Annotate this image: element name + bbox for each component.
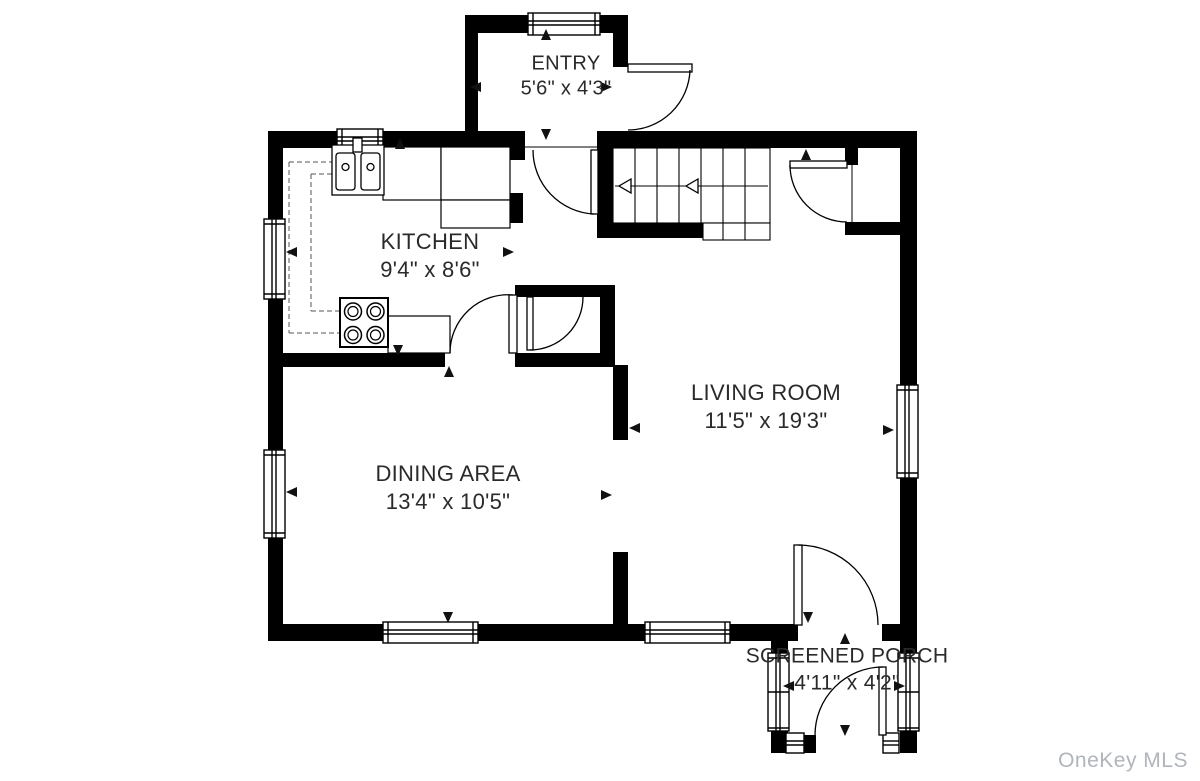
dim-arrow-right — [601, 490, 612, 500]
dim-arrow-down — [840, 725, 850, 736]
door-swing-arc — [628, 70, 690, 130]
wall — [613, 15, 628, 67]
floor-plan: ENTRY 5'6" x 4'3" KITCHEN 9'4" x 8'6" DI… — [0, 0, 1200, 781]
wall — [728, 624, 798, 641]
room-name: SCREENED PORCH — [746, 643, 949, 670]
wall — [268, 299, 283, 450]
floor-plan-drawing — [0, 0, 1200, 781]
door-swing-arc — [533, 150, 594, 214]
dim-arrow-left — [286, 487, 297, 497]
closet-door — [527, 297, 583, 350]
wall — [510, 148, 525, 160]
stove-icon — [340, 298, 388, 347]
wall — [478, 624, 647, 641]
wall — [465, 131, 525, 148]
hall-door — [525, 147, 598, 214]
living-closet-door — [790, 161, 852, 222]
counter — [383, 147, 441, 200]
wall — [900, 131, 917, 385]
wall — [465, 15, 528, 33]
window — [264, 219, 285, 299]
wall — [283, 353, 445, 367]
counter — [441, 147, 510, 200]
dim-arrow-down — [803, 612, 813, 623]
room-dimensions: 4'11" x 4'2" — [746, 670, 949, 697]
mls-watermark: OneKey MLS — [1058, 749, 1188, 773]
wall — [597, 131, 613, 148]
door-swing-arc — [530, 297, 583, 350]
dim-arrow-right — [503, 247, 514, 257]
wall — [597, 148, 613, 238]
wall — [613, 223, 703, 238]
window — [897, 385, 918, 478]
window — [383, 622, 478, 643]
screen-window — [883, 733, 899, 753]
wall — [845, 222, 917, 235]
wall — [613, 365, 628, 440]
wall — [804, 735, 816, 753]
dim-arrow-right — [883, 425, 894, 435]
wall — [613, 552, 628, 624]
dim-arrow-left — [286, 247, 297, 257]
wall — [465, 15, 478, 148]
room-dimensions: 11'5" x 19'3" — [691, 407, 841, 435]
wall — [900, 478, 917, 641]
door-swing-arc — [450, 295, 513, 353]
dim-arrow-up — [840, 633, 850, 644]
room-label-dining: DINING AREA 13'4" x 10'5" — [375, 460, 520, 516]
screen-window — [786, 733, 804, 753]
room-dimensions: 5'6" x 4'3" — [521, 77, 612, 102]
wall — [515, 285, 600, 297]
room-label-porch: SCREENED PORCH 4'11" x 4'2" — [746, 643, 949, 696]
window — [264, 450, 285, 538]
wall — [268, 624, 385, 641]
room-name: KITCHEN — [380, 228, 480, 256]
room-name: LIVING ROOM — [691, 379, 841, 407]
counter — [441, 200, 510, 228]
dim-arrow-up — [444, 366, 454, 377]
room-label-living: LIVING ROOM 11'5" x 19'3" — [691, 379, 841, 435]
wall — [600, 285, 615, 365]
room-label-kitchen: KITCHEN 9'4" x 8'6" — [380, 228, 480, 284]
room-dimensions: 13'4" x 10'5" — [375, 488, 520, 516]
wall — [510, 193, 523, 223]
dim-arrow-left — [629, 423, 640, 433]
front-door — [628, 64, 692, 130]
sink-icon — [332, 138, 384, 195]
wall — [613, 131, 917, 148]
room-name: DINING AREA — [375, 460, 520, 488]
wall — [268, 131, 283, 219]
dim-arrow-down — [541, 129, 551, 140]
door-swing-arc — [790, 165, 847, 222]
window — [645, 622, 730, 643]
room-dimensions: 9'4" x 8'6" — [380, 256, 480, 284]
dim-arrow-up — [801, 149, 811, 160]
kitchen-door — [450, 295, 517, 353]
wall — [900, 731, 917, 753]
window — [528, 13, 600, 35]
room-label-entry: ENTRY 5'6" x 4'3" — [521, 52, 612, 103]
room-name: ENTRY — [521, 52, 612, 77]
